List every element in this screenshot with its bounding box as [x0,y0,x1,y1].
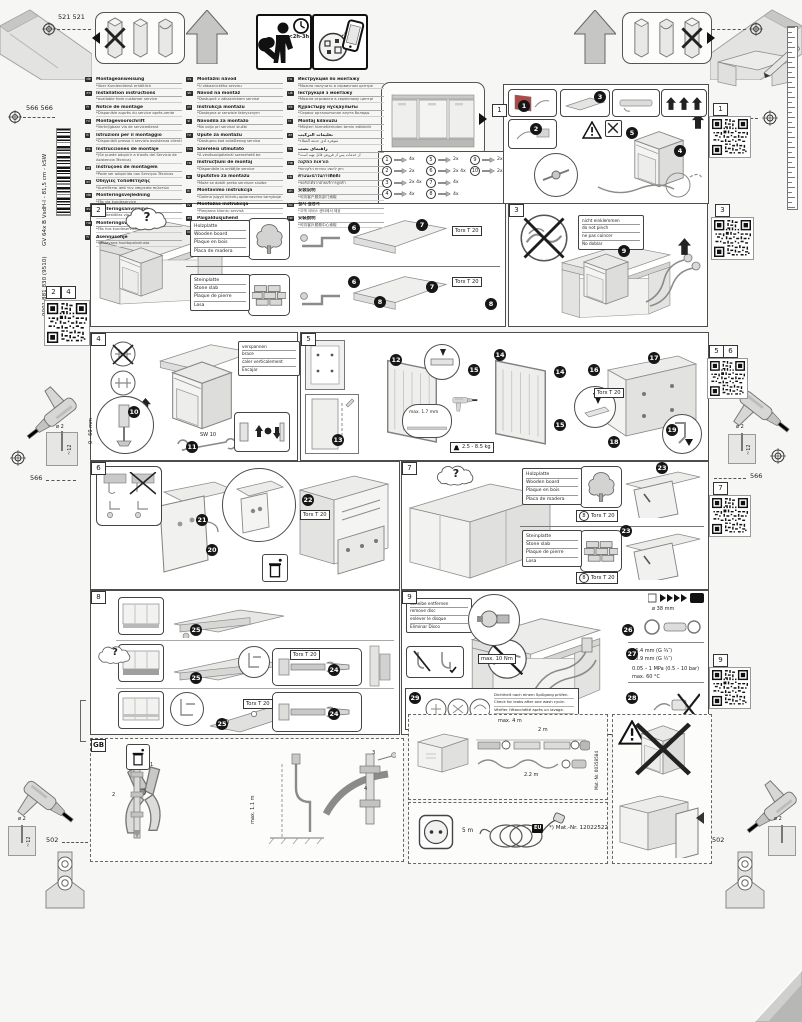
qr-code [709,116,751,158]
step-6-badge: 6 [348,276,360,288]
pointer-right-icon [707,32,721,44]
part-item: 7 4x [426,177,470,189]
language-note: *از خدمات پس از فروش قابل تهیه است [298,153,384,159]
tree-icon [584,470,618,504]
drain-hose-icon [648,593,704,603]
language-note: *Müşteri hizmetlerinden temin edilebilir [298,125,384,131]
level-adjust-box [234,412,290,452]
handle-panel-icon [156,16,175,60]
language-note: *über Kundendienst erhältlich [96,84,182,90]
material-label-line: Stone slab [194,285,246,293]
language-note: *Galima įsigyti klientų aptarnavimo tarn… [197,195,283,201]
language-note: *Može se dobiti preko servisne službe [197,181,283,187]
step-8-badge: 8 [374,296,386,308]
barcode [56,128,71,216]
language-code-badge: en [85,91,92,96]
part-number: 3 [382,178,392,188]
qr-ref-tag: 3 [715,204,730,217]
language-note: *Disponible auprès du service après-vent… [96,111,182,117]
leader-dashes [46,480,76,481]
language-code-badge: hu [186,147,193,152]
pilot-hole-sketch: ~12 [46,432,78,466]
drill-diameter: ø 2 [736,424,744,430]
template-sketch [305,340,345,390]
qr-code [711,217,754,260]
bricks-icon [252,282,286,308]
material-label-line: Placa de madera [194,248,246,255]
stone-label-box: SteinplatteStone slabPlaque de pierreLos… [522,530,582,567]
hardware-icon [482,156,495,164]
language-code-badge: it [85,133,90,138]
qr-ref-tag: 4 [61,286,76,299]
step-24-badge: 24 [328,664,340,676]
leader-dashes [23,117,55,118]
qr-code [709,667,751,709]
torx-label: Torx T 20 [452,277,482,287]
material-label-line: Steinplatte [194,277,246,285]
edge-magnifier [424,344,460,380]
cord-length-label: 5 m [462,828,473,834]
dim-bottom-left: 502 [46,836,58,844]
language-note: *Saatavana huoltopalvelusta [96,241,182,247]
wrench-size-10: SW 10 [200,432,216,438]
language-code-badge: sr [186,175,192,180]
pointer-left-icon [86,32,100,44]
step-22-badge: 22 [302,494,314,506]
step-box [508,89,557,117]
language-note: *Verkrijgbaar via de servicedienst [96,125,182,131]
language-entry: zh 安装说明 *可向客户服务部门索取 [287,188,384,200]
language-code-badge: kk [287,105,294,110]
language-code-badge: ko [287,203,294,208]
wood-icon-box [248,218,290,260]
language-note: *Сервис орталығынан алуға болады [298,111,384,117]
dispose-icon-box [126,744,150,770]
part-qty: 2x [453,157,459,162]
hose-mat-nr: Mat.-Nr. 00358584 [594,722,599,790]
material-label-line: Wooden board [526,479,578,487]
language-note: *Διατίθεται από την υπηρεσία πελατών [96,186,182,192]
step-21-badge: 21 [196,514,208,526]
step-8-badge: 8 [485,298,497,310]
language-entry: nl Montagevoorschrift *Verkrijgbaar via … [85,119,182,131]
language-column-3: ru Инструкция по монтажу *Можно получить… [287,77,384,230]
part-item: 1 4x [382,154,426,166]
corner-magnifier [222,468,296,542]
qr-ref-tag: 6 [723,345,738,358]
callout-3: 3 [372,750,375,756]
prohibited-tool-icon [605,120,622,137]
plinth-rail-sketch [170,598,288,638]
step-9-badge: 9 [618,245,630,257]
language-code-badge: lt [186,189,191,194]
language-entry: es Instrucciones de montaje *(Se puede a… [85,147,182,164]
language-entry: tw 安裝說明 *可向客戶服務中心索取 [287,216,384,228]
torx-label: Torx T 20 [594,388,624,398]
up-arrow-icon [574,10,616,64]
fixing-sketch [624,528,702,580]
leader-dashes [57,29,91,30]
gb-tag: GB [91,739,106,752]
qr-ref-tag: 5 [709,345,724,358]
no-door-panel-icon [105,16,125,60]
language-note: *Pode ser adquirido nos Serviços Técnico… [96,172,182,178]
gap-label: max. 1.7 mm [409,410,438,415]
part-item: 3 2x 4x [382,177,426,189]
install-time-label: <2h-3h [289,34,309,40]
language-entry: sl Navodila za montažo *Na voljo pri ser… [186,119,283,131]
parts-list: 1 4x 2 2x 3 2x 4x 4 [382,154,518,200]
language-note: *可向客户服务部门索取 [298,195,384,201]
registration-mark [10,450,26,466]
note-line: nicht einklemmen [582,218,640,226]
language-entry: hu Szerelési útmutató *A vevőszolgálatná… [186,147,283,159]
power-mat-nr: *) Mat.-Nr. 12022522 [549,825,608,831]
part-qty: 4x [453,192,459,197]
question-cloud: ? [120,205,174,233]
language-entry: he הוראות התקנה *ניתן להשיג בשירות הלקוח… [287,160,384,172]
step-27-badge: 27 [626,648,638,660]
weight-label: 2.5 - 8.5 kg [450,442,494,453]
socket-icon [418,814,454,850]
screw-detail-box [272,692,362,732]
stone-label-box: SteinplatteStone slabPlaque de pierreLos… [190,274,250,311]
panel-type-box-left [95,12,185,64]
pilot-hole-sketch [768,826,796,856]
step-24-badge: 24 [328,708,340,720]
material-label-line: Plaque de pierre [194,293,246,301]
step-25-badge: 25 [190,624,202,636]
material-label-line: Losa [526,558,578,565]
note-line: Eliminar Disco [410,624,468,631]
door-mark-sketch [305,394,359,454]
installer-pictogram [258,16,310,68]
language-code-badge: es [85,147,92,152]
no-door-panel-icon [682,16,702,60]
part-number: 2 [382,166,392,176]
part-item: 4 4x [382,189,426,201]
installation-sheet: 521 521 <2h-3h [0,0,802,1022]
part-number: 4 [382,189,392,199]
callout-4: 4 [364,786,367,792]
part-item: 2 2x [382,166,426,178]
divider [186,266,500,267]
language-note: *可向客戶服務中心索取 [298,223,384,229]
language-entry: cs Montážní návod *U zákaznického servis… [186,77,283,89]
divider [520,526,704,527]
material-label-line: Plaque en bois [194,239,246,247]
language-code-badge: fi [85,235,90,240]
language-note: *U zákaznického servisu [197,84,283,90]
language-entry: en Installation instructions *available … [85,91,182,103]
language-code-badge: fr [85,105,91,110]
language-note: *Na voljo pri servisni službi [197,125,283,131]
pilot-hole-sketch: ~12 [8,826,36,856]
language-entry: ko 설치 설명서 *고객 서비스 센터에서 제공 [287,202,384,214]
part-item: 5 2x [426,154,470,166]
note-line: brace [242,351,296,359]
step-14-badge: 14 [554,366,566,378]
registration-mark [42,22,56,36]
panel-8-tag: 8 [91,591,106,604]
appliance-corner-sketch [414,726,472,776]
check-line: Check for leaks after one wash cycle. [494,699,574,706]
material-label-line: Stone slab [526,541,578,549]
leader-dashes [712,29,746,30]
clip-magnifier [170,692,204,726]
material-label-line: Holzplatte [526,471,578,479]
stone-icon-box [248,274,290,316]
qr-scan-icon [312,14,368,70]
drill-depth: ~12 [746,437,752,455]
hardware-icon [394,179,407,187]
qr-code [44,300,90,346]
qr-code [709,495,751,537]
drill-diameter: ø 2 [56,424,64,430]
hose-sketch [594,157,704,199]
up-arrow-icon [186,10,228,64]
hose-clip-sketch [322,744,396,840]
step-23-badge: 23 [656,462,668,474]
hinge-plate-sketch [722,850,768,910]
note-line: do not pinch [582,225,640,233]
wall-sketch [366,644,392,688]
dishwasher-sketch [576,248,636,308]
language-entry: kk Құрастыру нұсқаулығы *Сервис орталығы… [287,105,384,117]
part-number: 8 [426,189,436,199]
language-code-badge: nl [85,119,91,124]
language-entry: lt Montavimo instrukcija *Galima įsigyti… [186,188,283,200]
language-code-badge: ru [287,77,294,82]
language-note: *Dostupné v zákazníckom servise [197,97,283,103]
dispose-icon-box [262,554,288,582]
panel-2-tag: 2 [91,204,106,217]
tree-icon [252,222,286,256]
language-note: *ניתן להשיג בשירות הלקוחות [298,167,384,173]
stone-icon-box [580,530,622,572]
note-line: caler verticalement [242,359,296,367]
region-tag: EU [532,824,543,833]
hardware-icon [394,190,407,198]
material-label-line: Placa de madera [526,496,578,503]
hardware-icon [394,156,407,164]
language-note: *Disponibili presso il servizio assisten… [96,139,182,145]
dishwasher-sketch [162,354,242,434]
language-note: *(Se puede adquirir a través del Servici… [96,153,182,164]
trash-icon [266,558,284,579]
hardware-icon [438,156,451,164]
language-entry: ru Инструкция по монтажу *Можно получить… [287,77,384,89]
part-qty: 2x [497,169,503,174]
question-mark: ? [120,205,174,233]
step-11-badge: 11 [186,441,198,453]
language-note: *Можно получить в сервисном центре [298,84,384,90]
language-code-badge: lv [186,203,192,208]
panel-9-tag: 9 [402,591,417,604]
torx-label: Torx T 20 [452,226,482,236]
wood-label-box: HolzplatteWooden boardPlaque en boisPlac… [522,468,582,505]
segment-length-label-2: 2.2 m [524,772,538,778]
plinth-variant-box [118,597,164,635]
step-2-badge: 2 [530,123,542,135]
foot-detail-magnifier [96,396,154,454]
language-entry: ro Instrucţiuni de montaj *Disponibile l… [186,160,283,172]
part-item: 8 4x [426,189,470,201]
note-line: ne pas coincer [582,233,640,241]
hardware-icon [482,167,495,175]
part-number: 5 [426,155,436,165]
step-7-badge: 7 [426,281,438,293]
language-note: *Dostupno kod ovlaštenog servisa [197,139,283,145]
language-entry: ar تعليمات التركيب *متوفرة لدى خدمة العم… [287,133,384,145]
part-qty: 2x [409,169,415,174]
material-label-line: Steinplatte [526,533,578,541]
registration-mark [749,22,763,36]
language-entry: tr Montaj kılavuzu *Müşteri hizmetlerind… [287,119,384,131]
panel-7-tag: 7 [402,462,417,475]
language-code-badge: no [85,221,92,226]
language-entry: de Montageanweisung *über Kundendienst e… [85,77,182,89]
hoses-sketch [640,246,702,316]
step-box [612,89,660,117]
max-length-label: max. 4 m [498,718,522,724]
dim-left: 566 566 [26,104,53,112]
language-entry: fa راهنمای نصب *از خدمات پس از فروش قابل… [287,147,384,159]
qr-ref-tag: 2 [46,286,61,299]
panel-6-tag: 6 [91,462,106,475]
step-1-badge: 1 [518,100,530,112]
leader-dashes [62,842,88,843]
step-25-badge: 25 [190,672,202,684]
page-curl-bottom-right [754,970,802,1022]
drain-connector-sketch [126,758,148,844]
question-cloud: ? [94,642,136,668]
wood-icon-box [580,466,622,508]
language-note: *متوفرة لدى خدمة العملاء [298,139,384,145]
part-qty: 4x [409,192,415,197]
hinge-plate-sketch [42,850,88,910]
handle-panel-icon [657,16,676,60]
wood-label-box: HolzplatteWooden boardPlaque en boisPlac… [190,220,250,257]
crossed-appliance [630,718,696,780]
qr-ref-tag: 7 [713,482,728,495]
detail-magnifier [534,153,578,197]
panel-3-tag: 3 [509,204,524,217]
drain-diameter-label: ø 38 mm [652,606,674,612]
language-note: *Можна отримати в сервісному центрі [298,97,384,103]
step-7-badge: 7 [416,219,428,231]
language-code-badge: sl [186,119,192,124]
pilot-hole-sketch: ~12 [728,434,756,464]
hardware-icon [438,179,451,187]
language-entry: pt Instruções de montagem *Pode ser adqu… [85,165,182,177]
language-code-badge: hr [186,133,193,138]
step-5-badge: 5 [626,127,638,139]
plinth-variant-box [118,691,164,729]
registration-mark [770,448,786,464]
torx-label: 8Torx T 20 [576,510,618,522]
language-code-badge: de [85,77,92,82]
material-label-line: Plaque en bois [526,487,578,495]
inlet-thread-b: 20.9 mm (G ½″) [632,656,672,662]
step-20-badge: 20 [206,544,218,556]
part-qty: 4x [409,157,415,162]
panel-type-box-right [622,12,712,64]
pressure-label: 0.05 – 1 MPa (0.5 – 10 bar) [632,666,699,672]
siphon-check-box [406,646,464,678]
note-line: Encajar [242,367,296,374]
language-note: *고객 서비스 센터에서 제공 [298,209,384,215]
leader-dashes [714,478,746,479]
torx-label: 8Torx T 20 [576,572,618,584]
qr-code [707,358,748,399]
installer-time-icon: <2h-3h [256,14,312,70]
note-line: enlever le disque [410,616,468,624]
torx-label: Torx T 20 [300,510,330,520]
language-code-badge: pl [186,105,192,110]
step-25-badge: 25 [216,718,228,730]
plinth-rail-sketch [170,646,288,686]
info-divider [628,642,704,643]
parts-list-box: 1 4x 2 2x 3 2x 4x 4 [378,151,522,204]
part-number: 1 [382,155,392,165]
language-note: *A vevőszolgálatnál szerezhető be [197,153,283,159]
language-code-badge: uk [287,91,294,96]
check-line: Dichtheit nach einem Spülgang prüfen. [494,692,574,699]
alignment-check-box [96,466,162,526]
info-divider [628,682,704,683]
step-3-badge: 3 [594,91,606,103]
up-arrow-icon [678,238,691,255]
language-code-badge: tr [287,119,293,124]
inlet-thread-a: 26.4 mm (G ¾″) [632,648,672,654]
step-17-badge: 17 [648,352,660,364]
bricks-icon [584,538,618,564]
row-divider [116,640,394,641]
part-number: 6 [426,166,436,176]
torx-label: Torx T 20 [290,650,320,660]
bracket-sketch [296,272,348,316]
step-28-badge: 28 [626,692,638,704]
drill-diameter: ø 2 [18,816,26,822]
do-not-pinch-label-box: nicht einklemmendo not pinchne pas coinc… [578,215,644,250]
panel-1-tag: 1 [492,104,507,117]
kitchen-front-sketch [390,91,476,149]
step-19-badge: 19 [666,424,678,436]
part-qty: 2x 4x [453,169,466,174]
hardware-icon [438,167,451,175]
language-entry: fr Notice de montage *Disponible auprès … [85,105,182,117]
part-item: 10 2x [470,166,514,178]
dim-bottom-right: 502 [712,836,724,844]
language-entry: uk Інструкція з монтажу *Можна отримати … [287,91,384,103]
step-29-badge: 29 [409,692,421,704]
part-qty: 2x 4x [409,180,422,185]
language-code-badge: da [85,193,92,198]
clip-magnifier [238,646,270,678]
part-ref: 8 [579,573,589,583]
trash-icon [130,748,146,767]
open-dishwasher-sketch [292,468,394,580]
step-15-badge: 15 [554,419,566,431]
dishwasher-sketch [112,242,170,300]
drill-diameter: ø 2 [774,816,782,822]
hardware-icon [438,190,451,198]
language-code-badge: zh [287,189,294,194]
note-line: remove disc [410,608,468,616]
step-4-badge: 4 [674,145,686,157]
language-entry: sk Návod na montáž *Dostupné v zákazníck… [186,91,283,103]
